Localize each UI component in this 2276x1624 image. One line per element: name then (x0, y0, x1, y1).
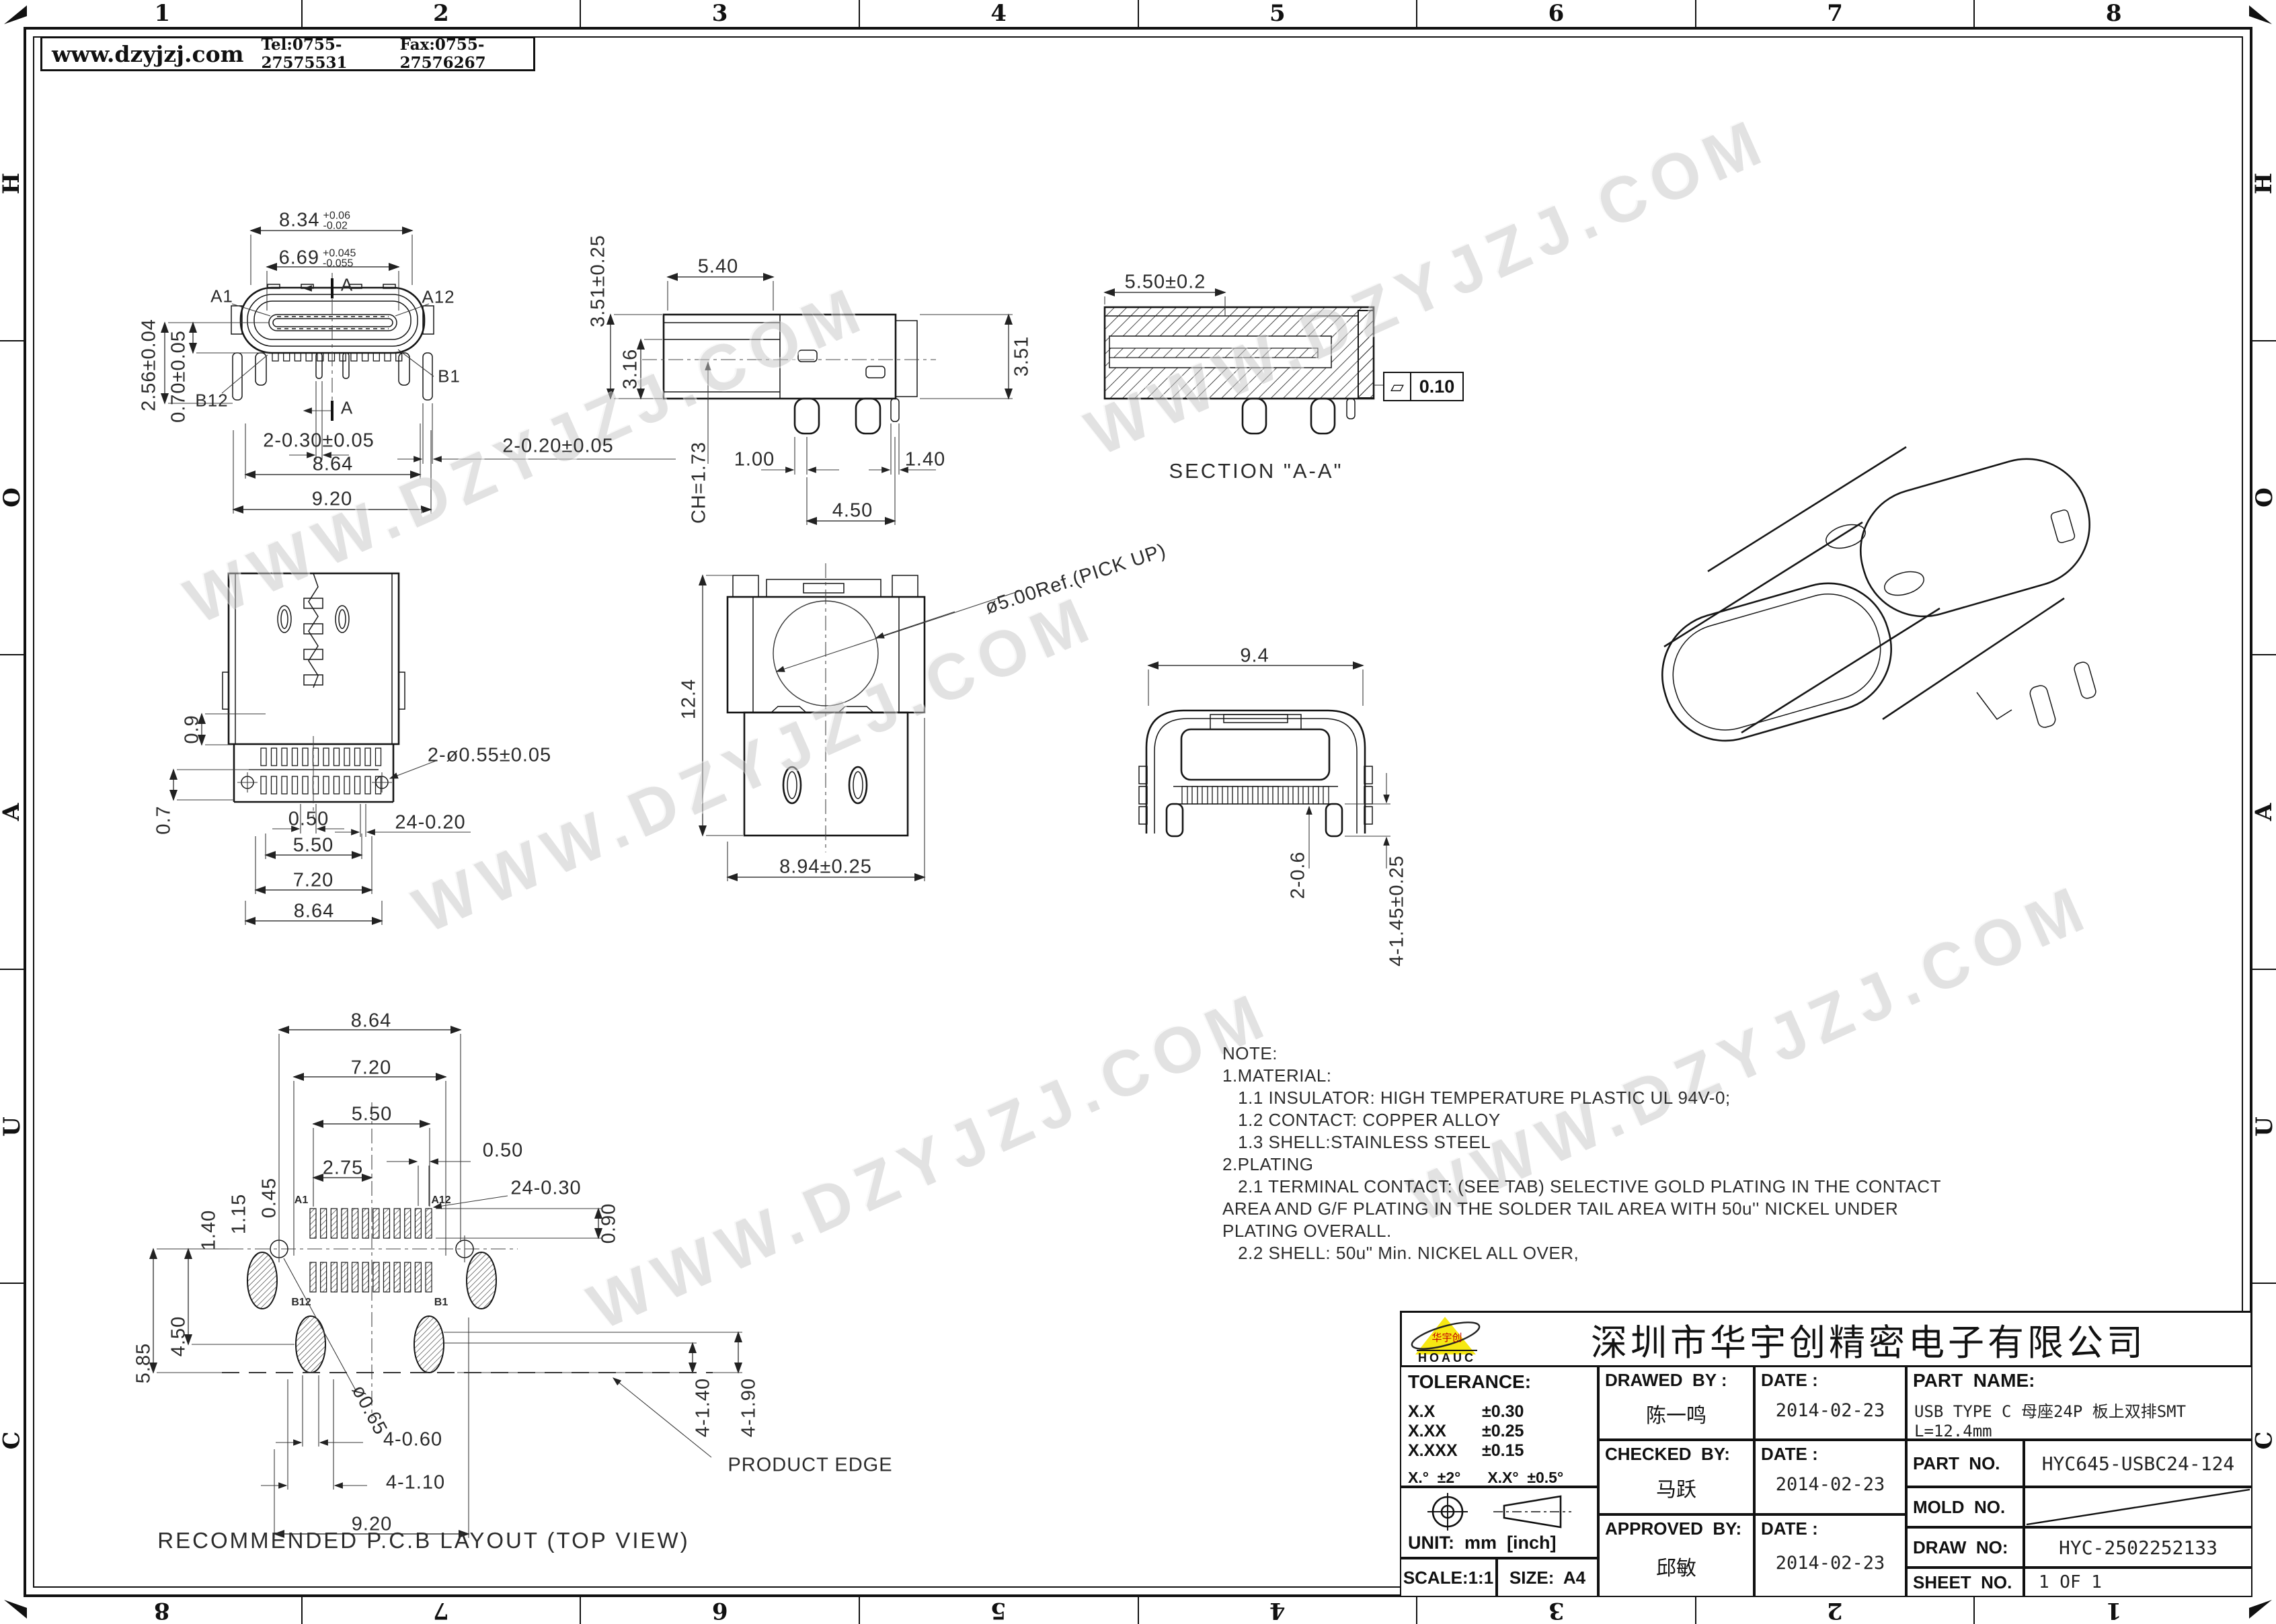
draw-no-label-cell: DRAW NO: (1906, 1527, 2024, 1568)
pin-label: A1 (210, 286, 233, 307)
note-line: 2.1 TERMINAL CONTACT: (SEE TAB) SELECTIV… (1222, 1176, 1941, 1198)
section-view (1105, 292, 1383, 434)
draw-no-label: DRAW NO: (1908, 1535, 2014, 1561)
approved-by-label: APPROVED BY: (1600, 1516, 1753, 1542)
website: www.dzyjzj.com (52, 41, 244, 67)
dim-label: 12.4 (678, 679, 701, 719)
dim-label: 1.40 (905, 449, 945, 471)
dim-label: 24-0.20 (395, 812, 465, 834)
dim-label: CH=1.73 (689, 442, 711, 524)
tol-val: ±0.25 (1482, 1422, 1524, 1441)
flatness-value: 0.10 (1411, 376, 1462, 397)
date-label: DATE : (1756, 1367, 1905, 1393)
dim-label: 3.51 (1011, 336, 1033, 376)
dim-label: 4-0.60 (383, 1429, 442, 1451)
tol-key: X.XX (1408, 1422, 1482, 1441)
dim-label: 4.50 (168, 1316, 190, 1356)
drawed-by-value: 陈一鸣 (1600, 1399, 1753, 1428)
part-no-label: PART NO. (1908, 1451, 2006, 1477)
dim-label: 2.56±0.04 (139, 319, 161, 411)
pcb-layout-view (153, 1030, 742, 1538)
blank-diagonal (2025, 1488, 2251, 1526)
dim-label: 24-0.30 (510, 1178, 581, 1200)
dim-label: 8.34+0.06-0.02 (279, 210, 350, 232)
note-line: 2.2 SHELL: 50u" Min. NICKEL ALL OVER, (1222, 1242, 1941, 1264)
drawing-sheet: 1 2 3 4 5 6 7 8 8 7 6 5 4 3 2 1 H O A U … (0, 0, 2276, 1624)
tol-deg: X.° ±2° (1408, 1469, 1460, 1487)
logo-en-text: HOAUC (1417, 1350, 1477, 1365)
drawed-by-cell: DRAWED BY : 陈一鸣 (1598, 1366, 1754, 1440)
isometric-view (1647, 444, 2104, 756)
fax: Fax:0755-27576267 (400, 36, 524, 72)
part-name-cell: PART NAME: USB TYPE C 母座24P 板上双排SMT L=12… (1906, 1366, 2252, 1440)
part-name-value: USB TYPE C 母座24P 板上双排SMT L=12.4mm (1908, 1394, 2251, 1445)
dim-label: 0.50 (288, 809, 329, 831)
scale-cell: SCALE:1:1 (1400, 1558, 1497, 1597)
pickup-view (703, 563, 1022, 881)
dim-label: 0.7 (153, 805, 175, 834)
dim-label: 0.70±0.05 (168, 330, 190, 423)
dim-label: 4-1.10 (386, 1472, 445, 1494)
dim-label: 7.20 (351, 1057, 391, 1080)
dim-label: 0.9 (182, 715, 204, 743)
dim-label: 0.50 (483, 1140, 523, 1162)
section-caption: SECTION "A-A" (1169, 459, 1343, 483)
dim-label: 1.40 (198, 1210, 221, 1250)
date-label: DATE : (1756, 1441, 1905, 1467)
dim-label: 2-0.30±0.05 (263, 430, 375, 452)
pcb-caption: RECOMMENDED P.C.B LAYOUT (TOP VIEW) (157, 1528, 689, 1553)
header-contact-box: www.dzyjzj.com Tel:0755-27575531 Fax:075… (40, 36, 535, 71)
pad-label: B1 (434, 1297, 448, 1309)
dim-label: 5.40 (698, 256, 738, 278)
drawed-by-label: DRAWED BY : (1600, 1367, 1753, 1393)
checked-date-value: 2014-02-23 (1756, 1474, 1905, 1495)
flatness-callout: ▱ 0.10 (1383, 372, 1464, 401)
tolerance-label: TOLERANCE: (1408, 1371, 1590, 1393)
note-line: 2.PLATING (1222, 1153, 1941, 1176)
dim-label: 2.75 (323, 1158, 363, 1180)
tol-val: ±0.30 (1482, 1402, 1524, 1422)
pad-label: A1 (295, 1194, 308, 1207)
dim-label: 3.51±0.25 (588, 235, 610, 327)
note-line: 1.2 CONTACT: COPPER ALLOY (1222, 1109, 1941, 1131)
company-name: 深圳市华宇创精密电子有限公司 (1487, 1313, 2250, 1366)
dim-label: 6.69+0.045-0.055 (279, 247, 356, 270)
dim-label: 1.15 (229, 1194, 251, 1234)
pad-label: B12 (291, 1297, 311, 1309)
logo-cn-text: 华宇创 (1431, 1330, 1462, 1344)
mold-no-value-blank (2024, 1487, 2252, 1527)
projection-cell: UNIT: mm [inch] (1400, 1487, 1598, 1558)
draw-no-value: HYC-2502252133 (2024, 1527, 2252, 1568)
checked-by-value: 马跃 (1600, 1473, 1753, 1502)
tol-key: X.X (1408, 1402, 1482, 1422)
dim-label: 2-0.20±0.05 (502, 436, 614, 458)
dim-label: 8.94±0.25 (779, 856, 872, 879)
dim-label: 8.64 (351, 1010, 391, 1032)
size-cell: SIZE: A4 (1497, 1558, 1598, 1597)
dim-label: 5.50 (293, 835, 333, 857)
dim-label: 4.50 (832, 500, 873, 522)
dim-label: 9.20 (312, 489, 352, 511)
note-line: AREA AND G/F PLATING IN THE SOLDER TAIL … (1222, 1198, 1941, 1220)
mold-no-label-cell: MOLD NO. (1906, 1487, 2024, 1527)
dim-label: 8.64 (313, 454, 353, 476)
note-line: 1.MATERIAL: (1222, 1065, 1941, 1087)
approved-date-cell: DATE : 2014-02-23 (1754, 1514, 1906, 1597)
dim-label: 4-1.40 (693, 1378, 715, 1437)
tol-deg: X.X° ±0.5° (1487, 1469, 1563, 1487)
notes-block: NOTE: 1.MATERIAL: 1.1 INSULATOR: HIGH TE… (1222, 1043, 1941, 1264)
cone-projection-icon (1492, 1492, 1573, 1531)
mold-no-label: MOLD NO. (1908, 1494, 2010, 1520)
dim-label: 5.50 (352, 1104, 392, 1126)
dim-label: 9.4 (1240, 645, 1269, 667)
approved-by-cell: APPROVED BY: 邱敏 (1598, 1514, 1754, 1597)
section-mark-label: A (341, 275, 353, 296)
dim-label: 5.85 (133, 1343, 155, 1383)
dim-label: 7.20 (293, 870, 333, 892)
company-logo: 华宇创 HOAUC (1407, 1313, 1487, 1365)
tol-val: ±0.15 (1482, 1441, 1524, 1461)
note-line: 1.3 SHELL:STAINLESS STEEL (1222, 1131, 1941, 1153)
first-angle-projection-icon (1426, 1492, 1469, 1531)
dim-label: 5.50±0.2 (1125, 272, 1206, 294)
tolerance-cell: TOLERANCE: X.X±0.30 X.XX±0.25 X.XXX±0.15… (1400, 1366, 1598, 1487)
telephone: Tel:0755-27575531 (262, 36, 383, 72)
parallelism-icon: ▱ (1384, 373, 1411, 400)
checked-date-cell: DATE : 2014-02-23 (1754, 1440, 1906, 1514)
dim-label: 2-ø0.55±0.05 (428, 745, 551, 767)
part-no-value: HYC645-USBC24-124 (2024, 1440, 2252, 1487)
side-view (611, 277, 1013, 525)
date-label: DATE : (1756, 1516, 1905, 1542)
part-name-label: PART NAME: (1908, 1367, 2251, 1394)
dim-label: 0.90 (598, 1203, 621, 1244)
pin-label: B1 (438, 366, 461, 387)
dim-label: 2-0.6 (1288, 851, 1310, 899)
drawed-date-value: 2014-02-23 (1756, 1400, 1905, 1421)
approved-date-value: 2014-02-23 (1756, 1553, 1905, 1574)
product-edge-label: PRODUCT EDGE (728, 1455, 892, 1477)
dim-label: 3.16 (620, 349, 642, 389)
pad-label: A12 (431, 1194, 450, 1207)
drawed-date-cell: DATE : 2014-02-23 (1754, 1366, 1906, 1440)
checked-by-label: CHECKED BY: (1600, 1441, 1753, 1467)
title-company-row: 华宇创 HOAUC 深圳市华宇创精密电子有限公司 (1400, 1311, 2252, 1367)
sheet-no-label-cell: SHEET NO. (1906, 1568, 2024, 1597)
note-line: NOTE: (1222, 1043, 1941, 1065)
dim-label: 4-1.45±0.25 (1386, 855, 1409, 967)
dim-label: 4-1.90 (738, 1378, 760, 1437)
note-line: 1.1 INSULATOR: HIGH TEMPERATURE PLASTIC … (1222, 1087, 1941, 1109)
part-no-label-cell: PART NO. (1906, 1440, 2024, 1487)
dim-label: 8.64 (294, 901, 334, 923)
sheet-no-value: 1 OF 1 (2024, 1568, 2252, 1597)
pin-label: B12 (195, 391, 228, 411)
approved-by-value: 邱敏 (1600, 1551, 1753, 1581)
sheet-no-label: SHEET NO. (1908, 1570, 2017, 1596)
note-line: PLATING OVERALL. (1222, 1220, 1941, 1242)
pin-label: A12 (422, 287, 455, 308)
rear-view (1139, 665, 1390, 868)
dim-label: 0.45 (259, 1178, 281, 1218)
dim-label: 1.00 (734, 449, 775, 471)
tol-key: X.XXX (1408, 1441, 1482, 1461)
section-mark-label: A (341, 398, 353, 419)
unit-label: UNIT: mm [inch] (1408, 1533, 1590, 1553)
checked-by-cell: CHECKED BY: 马跃 (1598, 1440, 1754, 1514)
